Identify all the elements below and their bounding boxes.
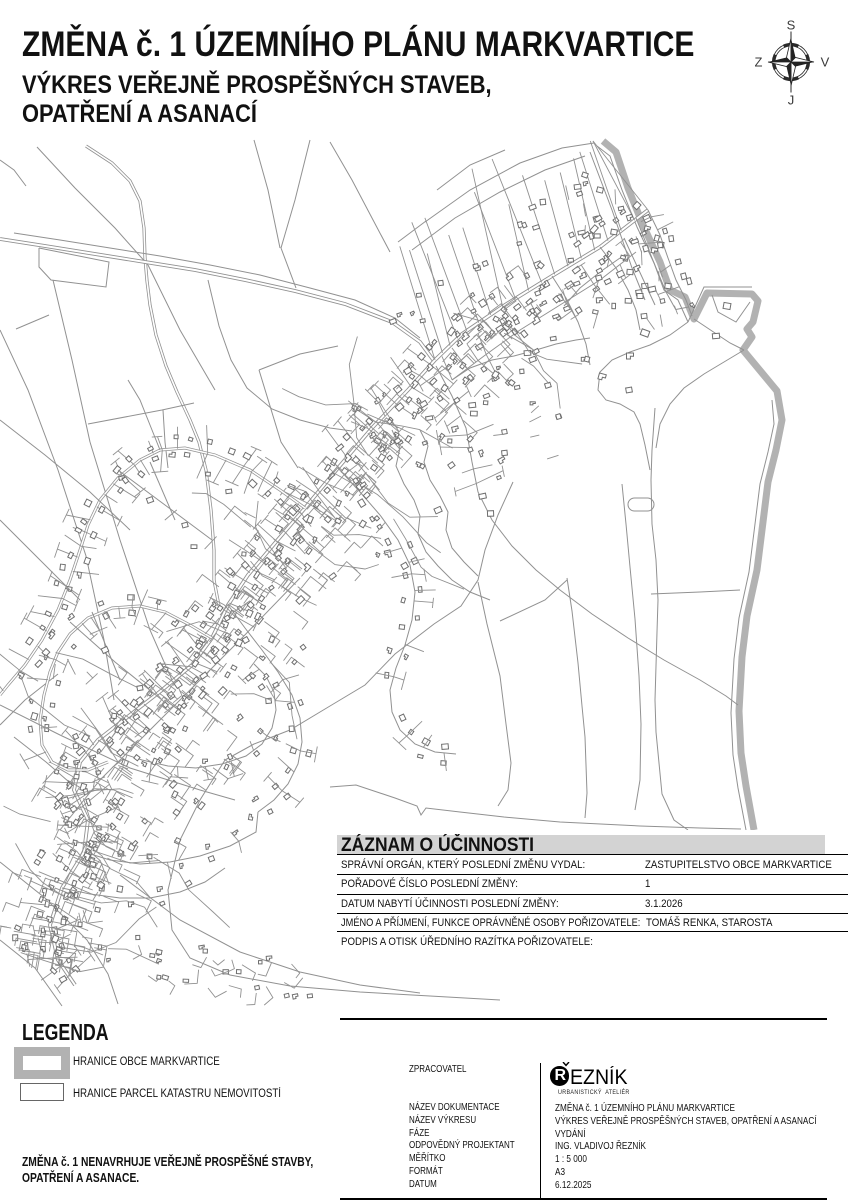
svg-text:Z: Z bbox=[755, 55, 763, 70]
svg-text:S: S bbox=[787, 18, 796, 33]
svg-text:J: J bbox=[788, 93, 795, 108]
svg-text:V: V bbox=[821, 55, 830, 70]
